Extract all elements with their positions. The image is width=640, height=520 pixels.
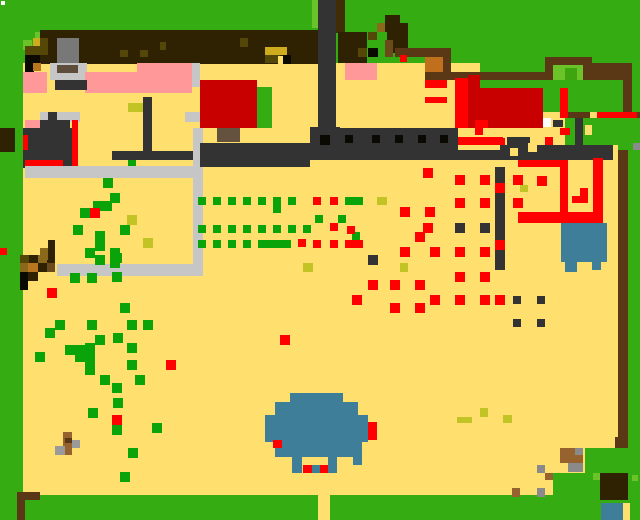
pixel-farm-map[interactable] [0, 0, 640, 520]
farm-map-canvas[interactable] [0, 0, 640, 520]
